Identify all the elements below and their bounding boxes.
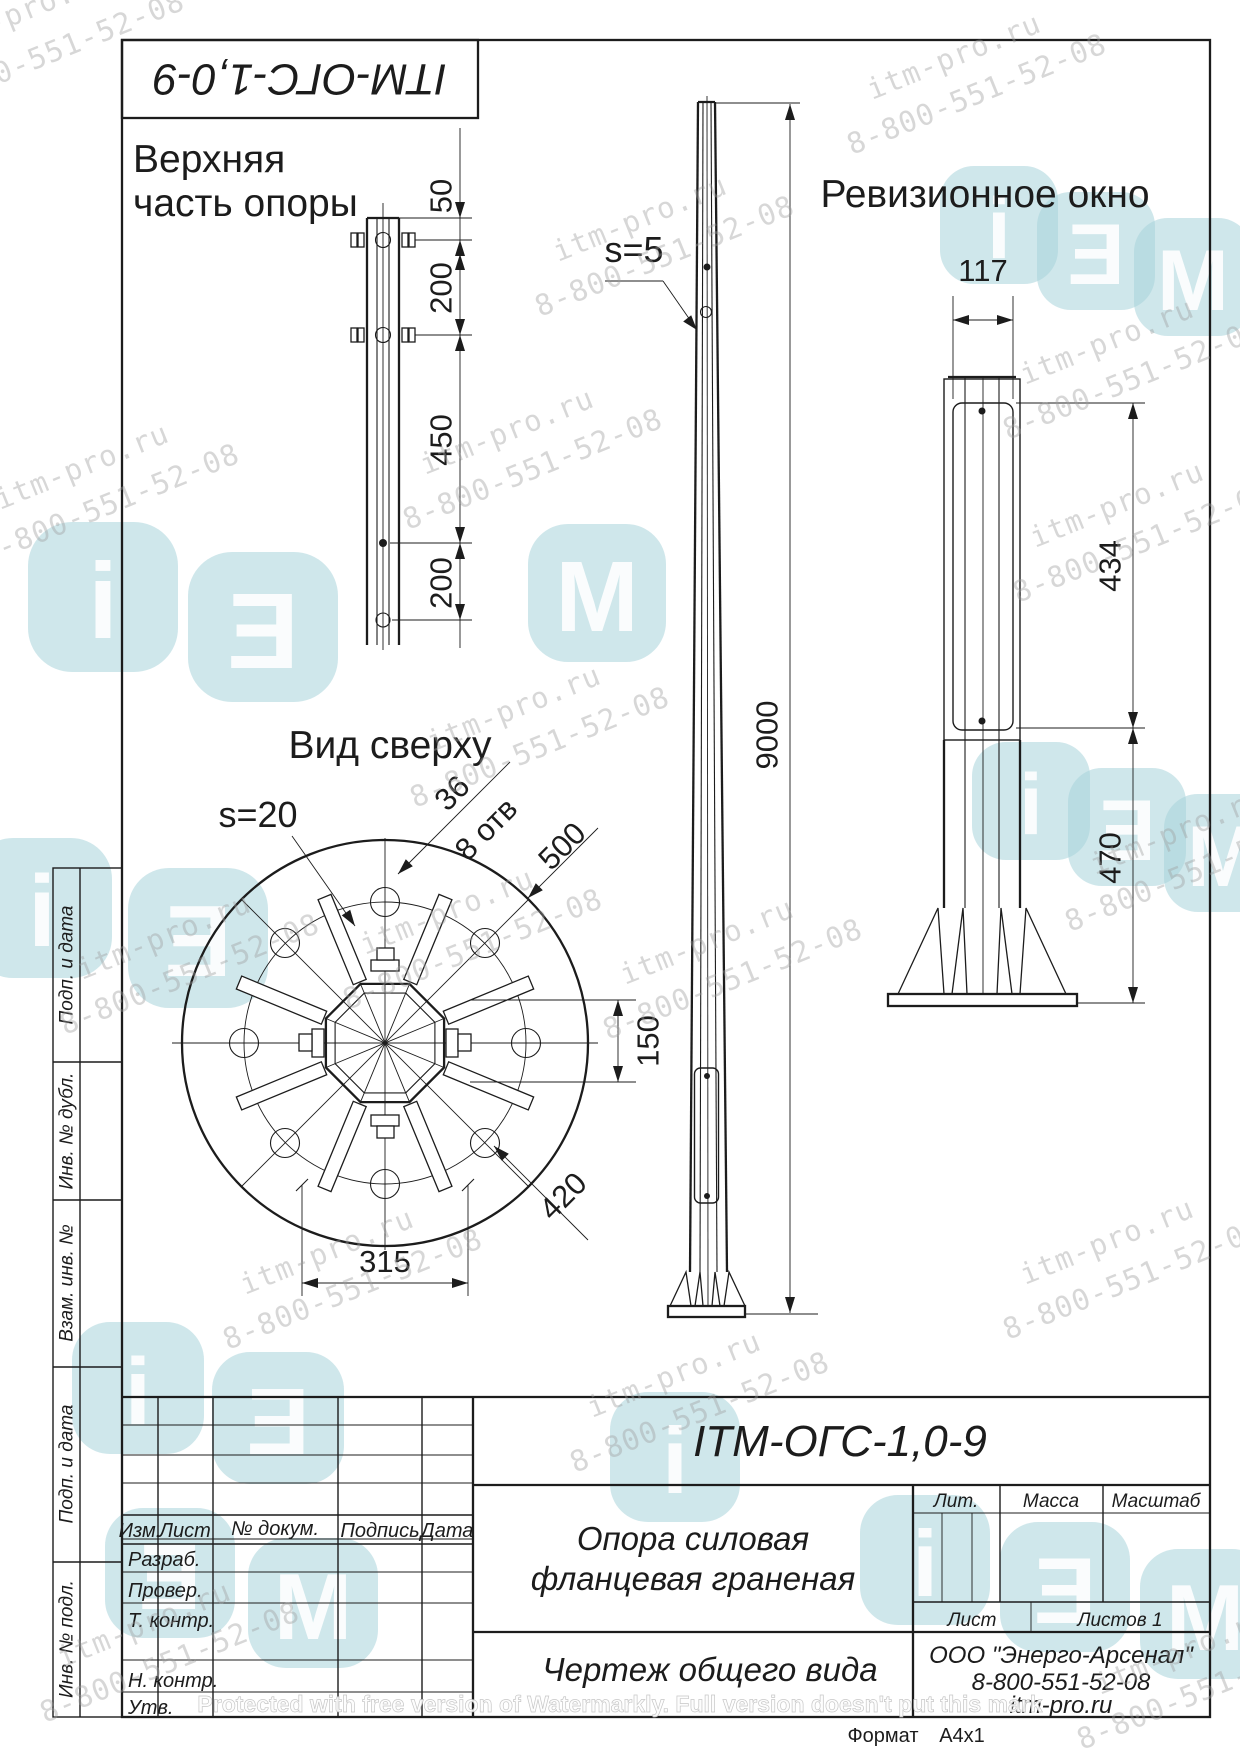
logo-letter-icon: i bbox=[88, 540, 118, 661]
logo-letter-icon: M bbox=[555, 541, 638, 653]
dim-420: 420 bbox=[532, 1165, 593, 1226]
logo-letter-icon: i bbox=[1019, 757, 1043, 853]
logo-letter-icon: Ǝ bbox=[227, 570, 299, 691]
scale-label: Масштаб bbox=[1112, 1491, 1202, 1512]
view-title: Ревизионное окно bbox=[820, 173, 1149, 216]
base-plate bbox=[888, 994, 1077, 1006]
base-plate bbox=[668, 1306, 745, 1317]
sheet-label: Лист bbox=[946, 1610, 997, 1631]
col-doc: № докум. bbox=[231, 1518, 319, 1540]
dim-117: 117 bbox=[958, 253, 1007, 288]
doc-designation: ITM-ОГС-1,0-9 bbox=[693, 1417, 987, 1466]
revision-door bbox=[695, 1068, 719, 1203]
watermarkly-notice: Protected with free version of Watermark… bbox=[197, 1691, 1042, 1717]
format-label: Формат bbox=[847, 1725, 918, 1747]
role-utv: Утв. bbox=[127, 1697, 173, 1719]
dim-500: 500 bbox=[531, 815, 592, 876]
logo-letter-icon: i bbox=[28, 856, 56, 968]
dim-200: 200 bbox=[424, 262, 459, 314]
doc-name-line2: фланцевая граненая bbox=[531, 1560, 855, 1597]
thickness-callout: s=20 bbox=[218, 794, 297, 835]
hole-mark bbox=[379, 539, 387, 547]
lit-label: Лит. bbox=[932, 1491, 979, 1512]
col-sign: Подпись bbox=[340, 1520, 419, 1542]
view-title: часть опоры bbox=[133, 182, 358, 225]
drawing-canvas: i Ǝ M i Ǝ M i Ǝ i Ǝ M i Ǝ Ǝ M i i Ǝ M IT… bbox=[0, 0, 1240, 1755]
format-value: A4x1 bbox=[939, 1725, 985, 1747]
logo-letter-icon: i bbox=[912, 1511, 938, 1616]
logo-letter-icon: Ǝ bbox=[246, 1369, 309, 1475]
mass-label: Масса bbox=[1023, 1491, 1079, 1512]
logo-letter-icon: i bbox=[125, 1339, 151, 1445]
col-list: Лист bbox=[157, 1520, 211, 1542]
doc-type: Чертеж общего вида bbox=[542, 1651, 877, 1688]
col-date: Дата bbox=[419, 1520, 474, 1542]
sheets-label: Листов 1 bbox=[1075, 1610, 1162, 1631]
view-title: Верхняя bbox=[133, 138, 285, 181]
doc-name-line1: Опора силовая bbox=[577, 1520, 809, 1557]
side-stamp-label: Подп. и дата bbox=[57, 1405, 78, 1524]
drawing-sheet: i Ǝ M i Ǝ M i Ǝ i Ǝ M i Ǝ Ǝ M i i Ǝ M IT… bbox=[0, 0, 1240, 1755]
role-razrab: Разраб. bbox=[128, 1549, 200, 1571]
col-izm: Изм. bbox=[119, 1520, 162, 1542]
hole-mark bbox=[704, 264, 711, 271]
logo-letter-icon: Ǝ bbox=[1067, 207, 1124, 303]
side-stamp-label: Взам. инв. № bbox=[57, 1224, 78, 1342]
designation-rotated: ITM-ОГС-1,0-9 bbox=[153, 55, 447, 104]
dim-200: 200 bbox=[424, 557, 459, 609]
side-stamp-label: Инв. № дубл. bbox=[57, 1073, 78, 1190]
dim-9000: 9000 bbox=[750, 701, 785, 770]
dim-50: 50 bbox=[424, 179, 459, 213]
